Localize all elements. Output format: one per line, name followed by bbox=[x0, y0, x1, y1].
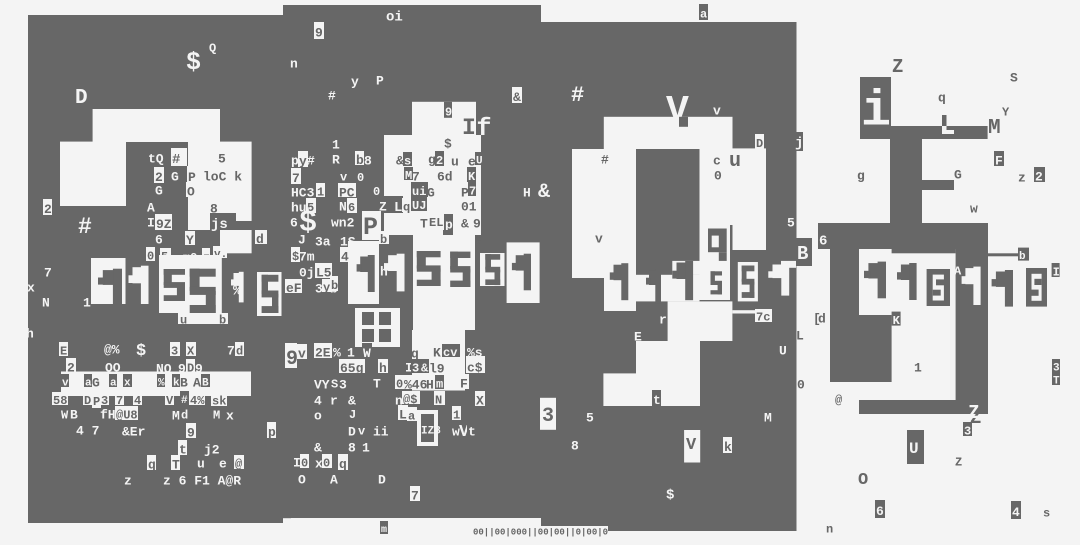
svg-text:M: M bbox=[988, 117, 1001, 140]
svg-text:7: 7 bbox=[292, 171, 300, 186]
svg-text:3: 3 bbox=[101, 394, 108, 408]
svg-text:&Er: &Er bbox=[122, 424, 145, 439]
svg-text:b: b bbox=[331, 279, 338, 293]
svg-text:#: # bbox=[181, 395, 188, 407]
svg-text:E: E bbox=[634, 329, 642, 344]
svg-text:4: 4 bbox=[314, 393, 322, 408]
svg-text:v: v bbox=[713, 103, 721, 118]
svg-text:U: U bbox=[476, 156, 483, 168]
svg-text:v: v bbox=[595, 231, 603, 246]
svg-text:2: 2 bbox=[44, 202, 52, 217]
svg-text:D: D bbox=[75, 87, 88, 110]
svg-text:z: z bbox=[1018, 170, 1026, 185]
svg-text:t: t bbox=[179, 442, 187, 457]
svg-text:00||00|000||00|00||0|00|0: 00||00|000||00|00||0|00|0 bbox=[473, 528, 608, 538]
svg-text:I: I bbox=[293, 455, 301, 470]
svg-text:l9: l9 bbox=[429, 361, 445, 376]
svg-text:&: & bbox=[314, 440, 322, 455]
svg-text:X: X bbox=[476, 393, 484, 408]
svg-text:M: M bbox=[213, 409, 220, 423]
svg-text:&: & bbox=[538, 181, 550, 204]
svg-text:q: q bbox=[938, 90, 946, 105]
svg-text:K: K bbox=[433, 345, 441, 360]
svg-text:5: 5 bbox=[586, 410, 594, 425]
svg-text:9: 9 bbox=[187, 425, 195, 440]
svg-text:1: 1 bbox=[332, 137, 340, 152]
svg-text:x: x bbox=[226, 408, 234, 423]
svg-text:v: v bbox=[298, 346, 306, 361]
svg-text:%: % bbox=[333, 345, 341, 360]
svg-text:@: @ bbox=[235, 458, 242, 472]
svg-text:q: q bbox=[148, 457, 156, 472]
svg-text:F: F bbox=[460, 376, 468, 391]
svg-text:@U8: @U8 bbox=[116, 409, 138, 423]
svg-text:t: t bbox=[653, 393, 661, 408]
svg-text:T: T bbox=[373, 376, 381, 391]
svg-text:d: d bbox=[181, 409, 188, 423]
svg-text:4: 4 bbox=[341, 249, 349, 264]
svg-text:a: a bbox=[408, 410, 415, 424]
svg-text:0: 0 bbox=[396, 378, 403, 392]
svg-text:6: 6 bbox=[819, 233, 827, 249]
svg-text:9: 9 bbox=[473, 216, 481, 231]
svg-text:x: x bbox=[124, 378, 131, 390]
svg-text:I: I bbox=[147, 215, 155, 230]
svg-text:s: s bbox=[404, 155, 411, 169]
svg-text:R: R bbox=[332, 152, 340, 167]
svg-text:q: q bbox=[403, 201, 410, 215]
svg-text:d: d bbox=[818, 311, 826, 326]
svg-text:j: j bbox=[795, 135, 803, 151]
svg-text:e: e bbox=[219, 456, 227, 471]
svg-text:D: D bbox=[348, 424, 356, 439]
svg-text:O: O bbox=[858, 471, 868, 490]
svg-text:$: $ bbox=[186, 48, 201, 77]
svg-text:2: 2 bbox=[1035, 169, 1043, 184]
svg-text:G: G bbox=[92, 375, 100, 390]
svg-text:0: 0 bbox=[714, 168, 722, 183]
svg-text:6: 6 bbox=[876, 504, 884, 519]
svg-text:a: a bbox=[110, 378, 117, 390]
svg-text:&: & bbox=[461, 216, 469, 231]
svg-text:3: 3 bbox=[171, 345, 178, 359]
svg-text:G: G bbox=[155, 183, 163, 198]
svg-text:A: A bbox=[147, 200, 155, 215]
svg-text:EL: EL bbox=[429, 216, 443, 230]
svg-text:8: 8 bbox=[364, 153, 372, 168]
svg-text:@%: @% bbox=[104, 342, 120, 357]
svg-text:3: 3 bbox=[964, 425, 971, 439]
svg-text:1: 1 bbox=[362, 440, 370, 455]
svg-text:65g: 65g bbox=[340, 361, 364, 376]
svg-text:d: d bbox=[236, 345, 243, 359]
svg-text:4%: 4% bbox=[190, 394, 205, 408]
svg-text:&: & bbox=[513, 90, 521, 105]
svg-text:0: 0 bbox=[357, 171, 364, 185]
svg-text:M: M bbox=[172, 408, 180, 423]
svg-text:7: 7 bbox=[469, 185, 476, 199]
svg-text:E: E bbox=[60, 345, 67, 359]
svg-text:eF: eF bbox=[286, 281, 302, 296]
svg-text:B: B bbox=[70, 407, 78, 422]
svg-text:b: b bbox=[219, 313, 226, 327]
svg-text:g: g bbox=[428, 152, 436, 167]
svg-text:oi: oi bbox=[386, 9, 403, 25]
svg-text:K: K bbox=[468, 170, 476, 184]
svg-text:j2: j2 bbox=[204, 442, 220, 457]
svg-text:9Z: 9Z bbox=[156, 217, 172, 232]
svg-text:D: D bbox=[378, 472, 386, 487]
svg-text:x: x bbox=[27, 280, 35, 295]
svg-text:U: U bbox=[779, 343, 787, 358]
svg-text:5: 5 bbox=[787, 215, 795, 230]
svg-text:y: y bbox=[351, 74, 359, 89]
svg-text:1: 1 bbox=[347, 345, 355, 360]
svg-text:2: 2 bbox=[436, 154, 443, 168]
svg-text:L5: L5 bbox=[316, 265, 332, 280]
svg-text:fH: fH bbox=[100, 407, 116, 422]
svg-text:7: 7 bbox=[44, 265, 52, 280]
svg-text:$: $ bbox=[444, 136, 452, 151]
svg-text:v: v bbox=[340, 171, 347, 185]
svg-text:m: m bbox=[436, 378, 443, 392]
svg-text:7: 7 bbox=[227, 343, 235, 358]
svg-text:k: k bbox=[724, 440, 732, 455]
svg-text:O: O bbox=[187, 184, 195, 199]
svg-text:%46: %46 bbox=[404, 377, 428, 392]
svg-text:L: L bbox=[796, 328, 804, 343]
svg-text:8: 8 bbox=[348, 440, 356, 455]
svg-text:1: 1 bbox=[317, 186, 324, 200]
svg-text:S: S bbox=[331, 378, 338, 392]
svg-text:B: B bbox=[797, 243, 808, 265]
svg-text:#: # bbox=[571, 83, 584, 108]
svg-text:s: s bbox=[1043, 506, 1050, 520]
svg-text:v: v bbox=[62, 378, 69, 390]
svg-text:$: $ bbox=[136, 342, 146, 361]
svg-text:9: 9 bbox=[286, 348, 298, 371]
svg-text:1: 1 bbox=[914, 360, 922, 375]
svg-text:D: D bbox=[84, 394, 91, 408]
svg-text:d: d bbox=[256, 232, 264, 247]
svg-text:B: B bbox=[202, 378, 209, 390]
svg-text:n: n bbox=[826, 522, 833, 536]
svg-text:#: # bbox=[307, 153, 315, 168]
svg-text:cv: cv bbox=[443, 346, 457, 360]
svg-text:P: P bbox=[363, 213, 378, 242]
svg-text:&: & bbox=[421, 362, 429, 376]
svg-text:o: o bbox=[314, 408, 322, 423]
svg-text:L: L bbox=[394, 200, 402, 216]
svg-text:IZ8: IZ8 bbox=[421, 425, 441, 437]
svg-text:B: B bbox=[180, 375, 188, 390]
svg-text:v: v bbox=[358, 425, 365, 439]
svg-text:4: 4 bbox=[134, 394, 141, 408]
svg-text:L: L bbox=[399, 407, 407, 422]
svg-text:W: W bbox=[61, 409, 69, 423]
svg-text:#: # bbox=[328, 88, 336, 103]
svg-text:@: @ bbox=[835, 393, 842, 407]
svg-text:b: b bbox=[356, 153, 364, 168]
svg-text:58: 58 bbox=[53, 394, 67, 408]
svg-text:%s: %s bbox=[467, 345, 483, 360]
svg-text:V: V bbox=[686, 436, 697, 455]
svg-text:7: 7 bbox=[411, 488, 419, 503]
svg-text:r: r bbox=[659, 312, 667, 327]
svg-text:0: 0 bbox=[373, 185, 380, 199]
svg-text:p: p bbox=[291, 153, 299, 168]
svg-text:7m: 7m bbox=[299, 249, 315, 264]
svg-text:V: V bbox=[166, 394, 174, 408]
svg-text:r: r bbox=[330, 393, 338, 408]
svg-text:Z: Z bbox=[379, 199, 387, 214]
svg-text:X: X bbox=[187, 345, 195, 359]
svg-text:wn2: wn2 bbox=[331, 215, 355, 230]
svg-text:3: 3 bbox=[542, 405, 554, 428]
svg-text:UJ: UJ bbox=[412, 199, 426, 213]
svg-text:2E: 2E bbox=[315, 345, 331, 360]
svg-text:7c: 7c bbox=[756, 310, 770, 324]
svg-text:0: 0 bbox=[797, 377, 805, 392]
svg-text:$: $ bbox=[666, 487, 674, 503]
svg-text:N: N bbox=[339, 199, 347, 214]
svg-text:n: n bbox=[290, 56, 298, 71]
svg-text:J: J bbox=[298, 232, 306, 247]
svg-text:01: 01 bbox=[461, 199, 477, 214]
svg-text:I: I bbox=[1053, 266, 1060, 280]
svg-text:a: a bbox=[85, 378, 92, 390]
svg-text:S: S bbox=[1010, 70, 1018, 85]
svg-text:N: N bbox=[435, 394, 442, 408]
svg-text:u: u bbox=[197, 456, 205, 471]
svg-text:1: 1 bbox=[453, 409, 460, 423]
svg-text:Z: Z bbox=[968, 402, 979, 424]
svg-text:%: % bbox=[158, 378, 165, 390]
svg-text:F: F bbox=[995, 153, 1003, 168]
svg-text:T: T bbox=[420, 216, 428, 231]
svg-text:6: 6 bbox=[290, 215, 298, 230]
svg-text:U: U bbox=[909, 440, 919, 458]
svg-text:y: y bbox=[299, 154, 307, 169]
svg-text:c: c bbox=[713, 153, 721, 168]
svg-text:A: A bbox=[193, 375, 201, 390]
svg-text:D: D bbox=[756, 137, 763, 151]
svg-text:9: 9 bbox=[315, 25, 323, 40]
svg-text:6d: 6d bbox=[437, 169, 453, 184]
svg-text:m: m bbox=[381, 525, 387, 536]
svg-text:G: G bbox=[954, 167, 962, 182]
svg-text:H: H bbox=[523, 185, 531, 200]
svg-text:u: u bbox=[729, 150, 741, 173]
svg-text:b: b bbox=[380, 233, 387, 247]
svg-text:0: 0 bbox=[301, 457, 308, 471]
svg-text:3: 3 bbox=[412, 362, 419, 376]
svg-text:z 6 F1 A@R: z 6 F1 A@R bbox=[163, 473, 241, 488]
svg-text:a: a bbox=[700, 8, 707, 22]
svg-text:G: G bbox=[171, 169, 179, 184]
svg-text:%: % bbox=[233, 283, 242, 299]
svg-text:O: O bbox=[298, 472, 306, 487]
svg-text:&: & bbox=[396, 153, 404, 168]
svg-text:H: H bbox=[426, 377, 434, 392]
svg-text:3a: 3a bbox=[315, 234, 331, 249]
svg-text:h: h bbox=[379, 361, 387, 376]
svg-text:0: 0 bbox=[323, 457, 330, 471]
svg-text:P: P bbox=[376, 73, 384, 88]
svg-text:u: u bbox=[451, 154, 459, 169]
svg-text:A: A bbox=[954, 264, 962, 278]
svg-text:Z: Z bbox=[955, 455, 962, 469]
svg-text:0: 0 bbox=[147, 250, 154, 264]
svg-text:3: 3 bbox=[315, 281, 323, 296]
svg-text:ii: ii bbox=[373, 424, 389, 439]
svg-text:loC k: loC k bbox=[203, 169, 242, 184]
svg-text:A: A bbox=[330, 472, 338, 487]
svg-text:0j: 0j bbox=[299, 265, 315, 280]
svg-text:t: t bbox=[468, 424, 476, 439]
svg-text:Y: Y bbox=[1002, 105, 1010, 119]
svg-text:Q: Q bbox=[209, 41, 216, 55]
svg-text:#: # bbox=[601, 152, 609, 167]
svg-text:#: # bbox=[78, 214, 92, 240]
svg-text:4: 4 bbox=[1012, 505, 1020, 520]
svg-text:J: J bbox=[349, 408, 356, 422]
svg-text:T: T bbox=[172, 457, 180, 472]
svg-text:tQ: tQ bbox=[148, 151, 164, 166]
svg-text:K: K bbox=[893, 314, 901, 328]
svg-text:b: b bbox=[1019, 251, 1026, 263]
svg-text:N: N bbox=[42, 295, 50, 310]
svg-text:1: 1 bbox=[83, 295, 91, 310]
svg-text:VY: VY bbox=[314, 377, 330, 392]
svg-text:4 7: 4 7 bbox=[76, 423, 99, 438]
svg-text:W: W bbox=[363, 346, 371, 361]
svg-text:6: 6 bbox=[155, 232, 163, 247]
svg-text:p: p bbox=[268, 425, 276, 440]
svg-text:P: P bbox=[461, 185, 469, 200]
svg-text:9: 9 bbox=[445, 105, 452, 119]
svg-text:x: x bbox=[315, 456, 323, 471]
svg-text:Y: Y bbox=[186, 233, 194, 248]
svg-text:#: # bbox=[172, 152, 180, 168]
svg-text:q: q bbox=[339, 457, 347, 472]
svg-text:js: js bbox=[211, 217, 228, 233]
svg-text:@$: @$ bbox=[403, 393, 417, 407]
svg-text:h: h bbox=[26, 326, 34, 341]
svg-text:g: g bbox=[857, 168, 865, 183]
svg-text:Z: Z bbox=[892, 56, 903, 78]
svg-text:c$: c$ bbox=[467, 360, 483, 375]
svg-text:G: G bbox=[427, 185, 435, 200]
svg-text:u: u bbox=[180, 313, 187, 327]
svg-text:w: w bbox=[970, 201, 978, 216]
svg-text:8: 8 bbox=[571, 438, 579, 453]
svg-text:M: M bbox=[764, 410, 772, 425]
svg-text:6: 6 bbox=[348, 201, 355, 215]
svg-text:T: T bbox=[1053, 376, 1060, 388]
svg-text:z: z bbox=[124, 473, 132, 488]
svg-text:5: 5 bbox=[218, 151, 226, 166]
svg-text:7: 7 bbox=[116, 394, 123, 408]
svg-text:3: 3 bbox=[339, 377, 347, 392]
svg-text:k: k bbox=[173, 378, 180, 390]
